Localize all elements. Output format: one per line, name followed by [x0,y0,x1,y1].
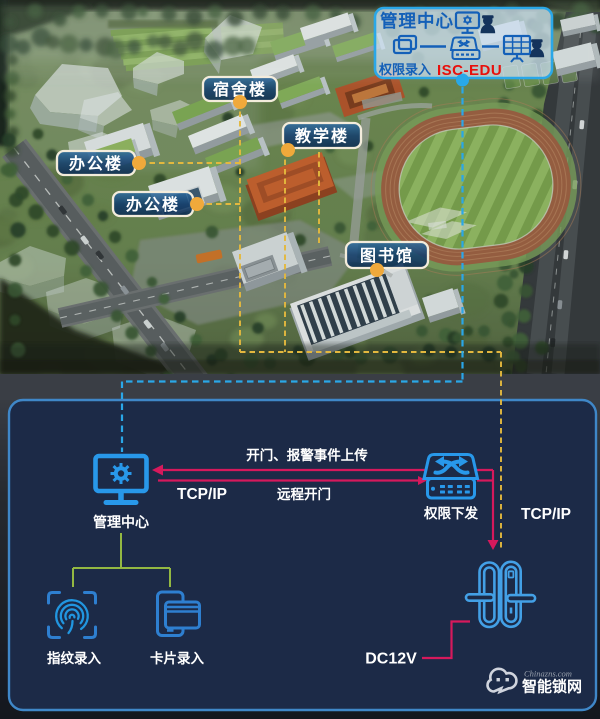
svg-text:权限录入: 权限录入 [378,62,431,77]
svg-text:Chinazns.com: Chinazns.com [524,669,572,679]
svg-text:ISC-EDU: ISC-EDU [437,62,502,79]
svg-text:管理中心: 管理中心 [93,514,149,530]
svg-text:指纹录入: 指纹录入 [47,650,101,666]
svg-text:图书馆: 图书馆 [360,246,414,265]
svg-text:卡片录入: 卡片录入 [150,650,204,666]
svg-text:DC12V: DC12V [365,651,417,668]
svg-text:TCP/IP: TCP/IP [177,486,227,503]
svg-text:管理中心: 管理中心 [380,11,454,31]
svg-text:开门、报警事件上传: 开门、报警事件上传 [246,447,368,463]
svg-text:TCP/IP: TCP/IP [521,506,571,523]
svg-text:办公楼: 办公楼 [126,195,180,214]
svg-text:办公楼: 办公楼 [69,154,123,173]
svg-text:权限下发: 权限下发 [423,505,478,521]
svg-text:教学楼: 教学楼 [295,126,349,145]
svg-text:远程开门: 远程开门 [277,486,331,502]
svg-text:智能锁网: 智能锁网 [522,678,582,696]
